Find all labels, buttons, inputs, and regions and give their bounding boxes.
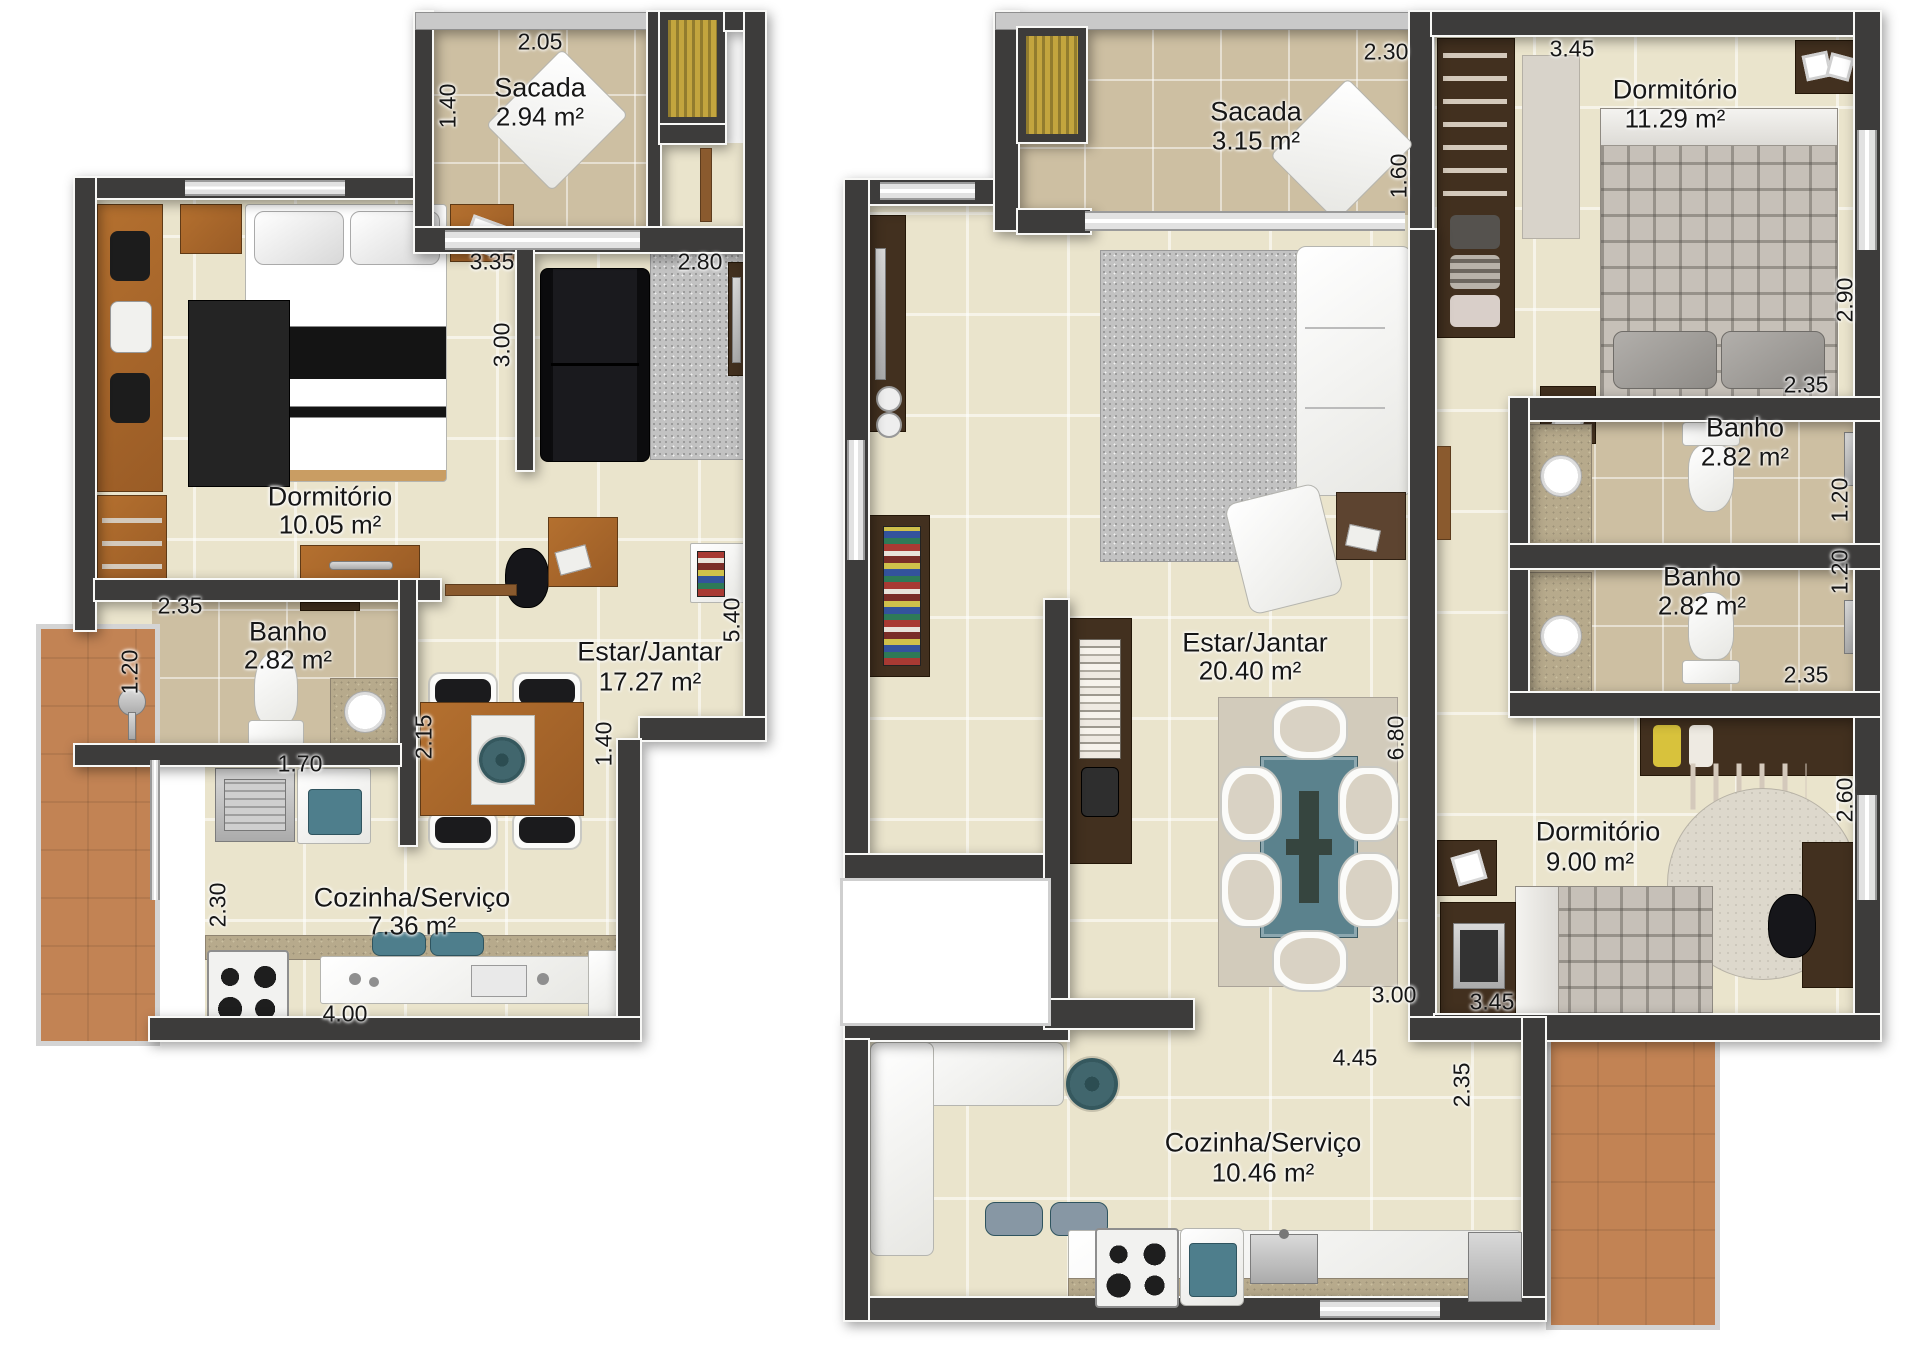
chair-cushion: [1346, 860, 1392, 920]
entry-door: [700, 148, 712, 222]
room-area-label: 3.15 m²: [1212, 126, 1300, 157]
hanging-clothes: [1443, 45, 1507, 205]
bedroom-window: [185, 180, 345, 196]
room-area-label: 2.82 m²: [1658, 591, 1746, 622]
dimension-label: 2.05: [518, 29, 563, 56]
white-books: [1079, 639, 1121, 759]
kitchen-window: [1320, 1300, 1440, 1318]
dimension-label: 2.35: [1784, 662, 1829, 689]
decor-plate: [876, 386, 902, 412]
chair-cushion: [1280, 938, 1340, 984]
folded-item: [1450, 255, 1500, 289]
dimension-label: 1.60: [1386, 154, 1413, 199]
room-area-label: 10.46 m²: [1212, 1158, 1315, 1189]
left-wall-window: [847, 440, 865, 560]
living-window: [880, 182, 975, 200]
pillow: [1613, 331, 1717, 389]
room-area-label: 2.82 m²: [244, 645, 332, 676]
books: [883, 526, 921, 666]
desk-chair: [1768, 894, 1816, 958]
balcony-sliding-door: [1085, 211, 1405, 231]
floorplan-canvas: Sacada 2.94 m² Dormitório 10.05 m² Banho…: [0, 0, 1920, 1350]
terrace-notch: [840, 878, 1051, 1026]
dining-chair: [1220, 852, 1282, 928]
yellow-shirt: [1653, 725, 1681, 767]
sofa-seam: [1305, 407, 1385, 409]
oven: [1468, 1232, 1522, 1302]
room-area-label: 2.94 m²: [496, 102, 584, 133]
towel-bar: [1844, 600, 1854, 654]
corridor-door: [1437, 446, 1451, 540]
dimension-label: 3.35: [470, 249, 515, 276]
chair-cushion: [1228, 774, 1274, 834]
room-label: Sacada: [494, 73, 586, 104]
magazines: [1345, 524, 1381, 552]
nightstand: [1437, 840, 1497, 896]
double-bed: [1600, 108, 1838, 400]
dining-chair: [1220, 766, 1282, 842]
dimension-label: 1.40: [435, 84, 462, 129]
tv-screen: [1453, 923, 1505, 989]
dining-chair: [1272, 698, 1348, 760]
room-label: Banho: [1663, 562, 1741, 593]
room-label: Sacada: [1210, 97, 1302, 128]
room-area-label: 2.82 m²: [1701, 442, 1789, 473]
room-area-label: 11.29 m²: [1625, 104, 1726, 135]
bedroom2-window: [1857, 795, 1877, 900]
folded-item: [1450, 215, 1500, 249]
dimension-label: 2.80: [678, 249, 723, 276]
sink-bowl: [1540, 455, 1582, 497]
dimension-label: 4.45: [1333, 1045, 1378, 1072]
folded-item: [1450, 295, 1500, 327]
bed-fold: [1516, 887, 1559, 1015]
table-centerpiece: [1286, 839, 1332, 855]
dimension-label: 2.35: [158, 593, 203, 620]
dimension-label: 2.30: [1364, 39, 1409, 66]
room-label: Estar/Jantar: [1182, 628, 1328, 659]
balcony-sliding-door: [445, 230, 640, 250]
decor-plate: [876, 412, 902, 438]
kitchen-bench: [870, 1042, 934, 1256]
dining-chair: [1338, 852, 1400, 928]
kitchen-sink: [1250, 1234, 1318, 1284]
dishwasher-door: [1189, 1243, 1237, 1297]
service-balcony-floor: [1546, 1036, 1720, 1330]
service-balcony-door: [150, 760, 160, 900]
dimension-label: 3.45: [1470, 989, 1515, 1016]
dimension-label: 1.20: [1827, 478, 1854, 523]
coffee-table: [1336, 492, 1406, 560]
dimension-label: 2.30: [205, 883, 232, 928]
room-area-label: 9.00 m²: [1546, 847, 1634, 878]
dining-chair: [1338, 766, 1400, 842]
sofa: [1296, 246, 1412, 496]
sink-bowl: [1540, 615, 1582, 657]
chair-cushion: [1346, 774, 1392, 834]
bath-sink-counter: [1528, 424, 1592, 544]
room-label: Dormitório: [1536, 817, 1661, 848]
room-label: Dormitório: [1613, 75, 1738, 106]
room-label: Estar/Jantar: [577, 637, 723, 668]
picture-frame: [1450, 849, 1487, 886]
chair-cushion: [1280, 706, 1340, 752]
sofa-seam: [1305, 327, 1385, 329]
telephone: [1081, 767, 1119, 817]
bookshelf: [868, 515, 930, 677]
room-area-label: 20.40 m²: [1199, 656, 1302, 687]
dimension-label: 2.35: [1784, 372, 1829, 399]
single-bed: [1515, 886, 1713, 1016]
dimension-label: 6.80: [1383, 716, 1410, 761]
dimension-label: 2.35: [1449, 1063, 1476, 1108]
room-label: Banho: [1706, 413, 1784, 444]
closet-strip: [1640, 716, 1857, 776]
dimension-label: 2.60: [1832, 778, 1859, 823]
white-shirt: [1689, 725, 1713, 767]
plant: [1066, 1058, 1118, 1110]
dimension-label: 3.00: [489, 323, 516, 368]
dimension-label: 4.00: [323, 1001, 368, 1028]
dimension-label: 1.70: [278, 751, 323, 778]
dimension-label: 3.00: [1372, 982, 1417, 1009]
room-area-label: 7.36 m²: [368, 911, 456, 942]
corner-shelf: [1795, 40, 1857, 94]
dimension-label: 3.45: [1550, 36, 1595, 63]
stool-cushion: [985, 1202, 1043, 1236]
tv-screen: [875, 248, 886, 380]
tv-screen-inner: [1460, 930, 1498, 982]
room-label: Banho: [249, 617, 327, 648]
dimension-label: 2.15: [411, 715, 438, 760]
faucet: [1279, 1229, 1289, 1239]
dimension-label: 1.20: [117, 650, 144, 695]
dishwasher: [1180, 1228, 1244, 1306]
centerpiece-plant: [479, 737, 525, 783]
shelf-unit: [1068, 618, 1132, 864]
bedroom1-window: [1857, 130, 1877, 250]
toilet-tank: [1682, 660, 1740, 684]
dimension-label: 1.40: [591, 722, 618, 767]
wardrobe: [1437, 38, 1515, 338]
room-label: Cozinha/Serviço: [1165, 1128, 1362, 1159]
room-label: Cozinha/Serviço: [314, 883, 511, 914]
dining-table: [420, 702, 584, 816]
chair-cushion: [1228, 860, 1274, 920]
dimension-label: 1.20: [1827, 550, 1854, 595]
dimension-label: 2.90: [1832, 278, 1859, 323]
room-area-label: 10.05 m²: [279, 510, 382, 541]
runner-rug: [1522, 55, 1580, 239]
stove: [1095, 1228, 1179, 1308]
bedroom-door: [445, 584, 517, 596]
picture-frame: [1825, 52, 1854, 81]
dimension-label: 5.40: [719, 598, 746, 643]
bath-sink-counter: [1528, 572, 1592, 692]
room-label: Dormitório: [268, 482, 393, 513]
dining-chair: [1272, 930, 1348, 992]
tv-sideboard: [868, 215, 906, 432]
room-area-label: 17.27 m²: [599, 667, 702, 698]
